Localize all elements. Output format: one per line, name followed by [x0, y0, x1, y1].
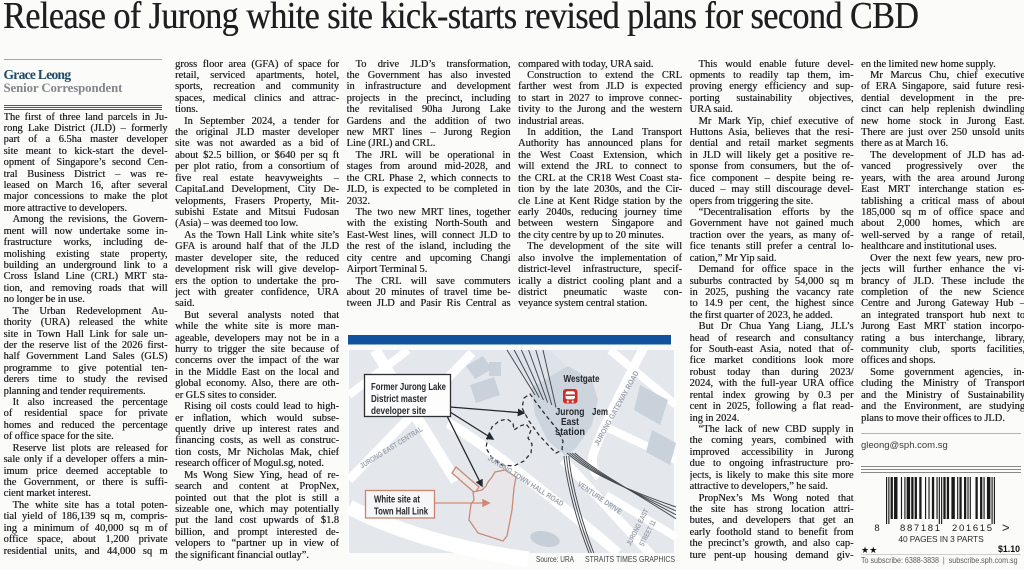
svg-text:201615: 201615	[952, 523, 992, 534]
svg-text:station: station	[555, 427, 585, 438]
svg-text:Westgate: Westgate	[564, 374, 600, 385]
svg-text:Source: URA: Source: URA	[536, 554, 574, 564]
svg-text:Former Jurong Lake: Former Jurong Lake	[371, 381, 446, 393]
svg-text:STRAITS TIMES GRAPHICS: STRAITS TIMES GRAPHICS	[585, 554, 675, 564]
svg-text:887181: 887181	[900, 523, 940, 534]
svg-text:8: 8	[874, 523, 879, 534]
svg-text:District master: District master	[371, 393, 427, 405]
svg-text:White site at: White site at	[374, 495, 421, 506]
svg-text:developer site: developer site	[371, 405, 426, 417]
svg-text:Town Hall Link: Town Hall Link	[374, 507, 428, 518]
